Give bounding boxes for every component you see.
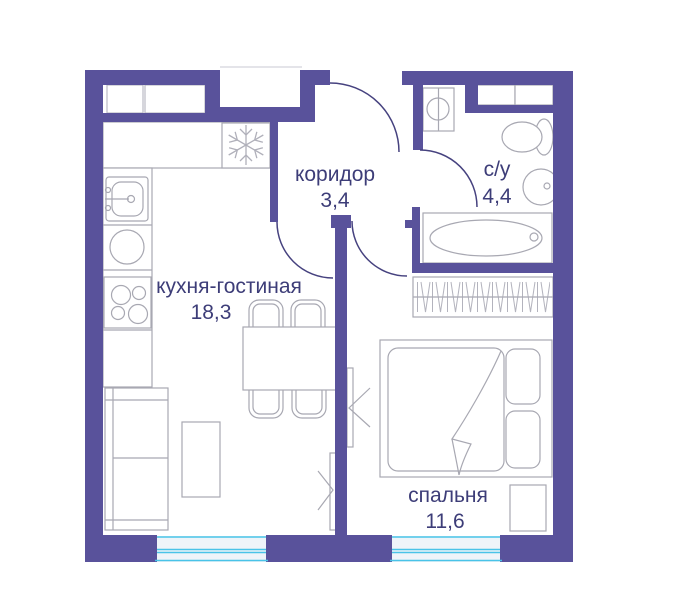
bedroom-label: спальня <box>408 484 488 507</box>
toilet <box>502 119 553 155</box>
wall-partition-central <box>335 226 347 535</box>
corridor-label: коридор <box>295 163 375 186</box>
door-swing-bathroom <box>420 150 477 207</box>
wall-bathroom-bottom <box>412 263 553 273</box>
kitchen-living-label: кухня-гостиная <box>156 275 302 298</box>
bathroom-label: с/у <box>484 158 511 181</box>
window-bedroom <box>390 536 502 562</box>
bathtub <box>423 213 552 263</box>
wall-kitchen-corridor <box>270 120 278 222</box>
wall-top-right <box>402 71 573 85</box>
sofa <box>105 388 168 530</box>
wall-niche-cabinets <box>107 85 205 113</box>
wall-left <box>85 70 103 562</box>
wall-duct <box>465 105 553 113</box>
bedroom-area: 11,6 <box>425 510 464 533</box>
wardrobe <box>413 277 553 317</box>
coffee-table <box>182 422 220 497</box>
refrigerator <box>222 123 270 168</box>
door-swing-bedroom <box>352 221 407 276</box>
floor-plan: коридор 3,4 с/у 4,4 кухня-гостиная 18,3 … <box>0 0 679 601</box>
wall-bottom <box>85 535 157 562</box>
kitchen-sink <box>105 177 148 221</box>
double-bed <box>380 340 552 477</box>
corridor-area: 3,4 <box>320 189 350 212</box>
washing-machine <box>423 88 454 131</box>
wall-bathroom-corridor <box>413 85 423 150</box>
bathroom-area: 4,4 <box>482 185 512 208</box>
tv-panel-kitchen <box>318 453 336 530</box>
floor-plan-canvas: коридор 3,4 с/у 4,4 кухня-гостиная 18,3 … <box>0 0 679 601</box>
cooktop <box>104 277 151 328</box>
door-swing-entrance <box>330 83 399 152</box>
window-kitchen <box>155 536 268 562</box>
dining-table <box>243 327 336 390</box>
wall-top-left <box>85 70 220 85</box>
wall-bathtub-side <box>412 207 420 272</box>
kitchen-living-area: 18,3 <box>191 301 232 324</box>
nightstand <box>510 485 546 531</box>
door-swing-kitchen <box>277 222 333 278</box>
entrance-jamb-left <box>300 70 330 85</box>
wall-right <box>553 71 573 562</box>
shelf-unit <box>477 85 553 105</box>
tv-panel-bedroom <box>347 368 370 447</box>
